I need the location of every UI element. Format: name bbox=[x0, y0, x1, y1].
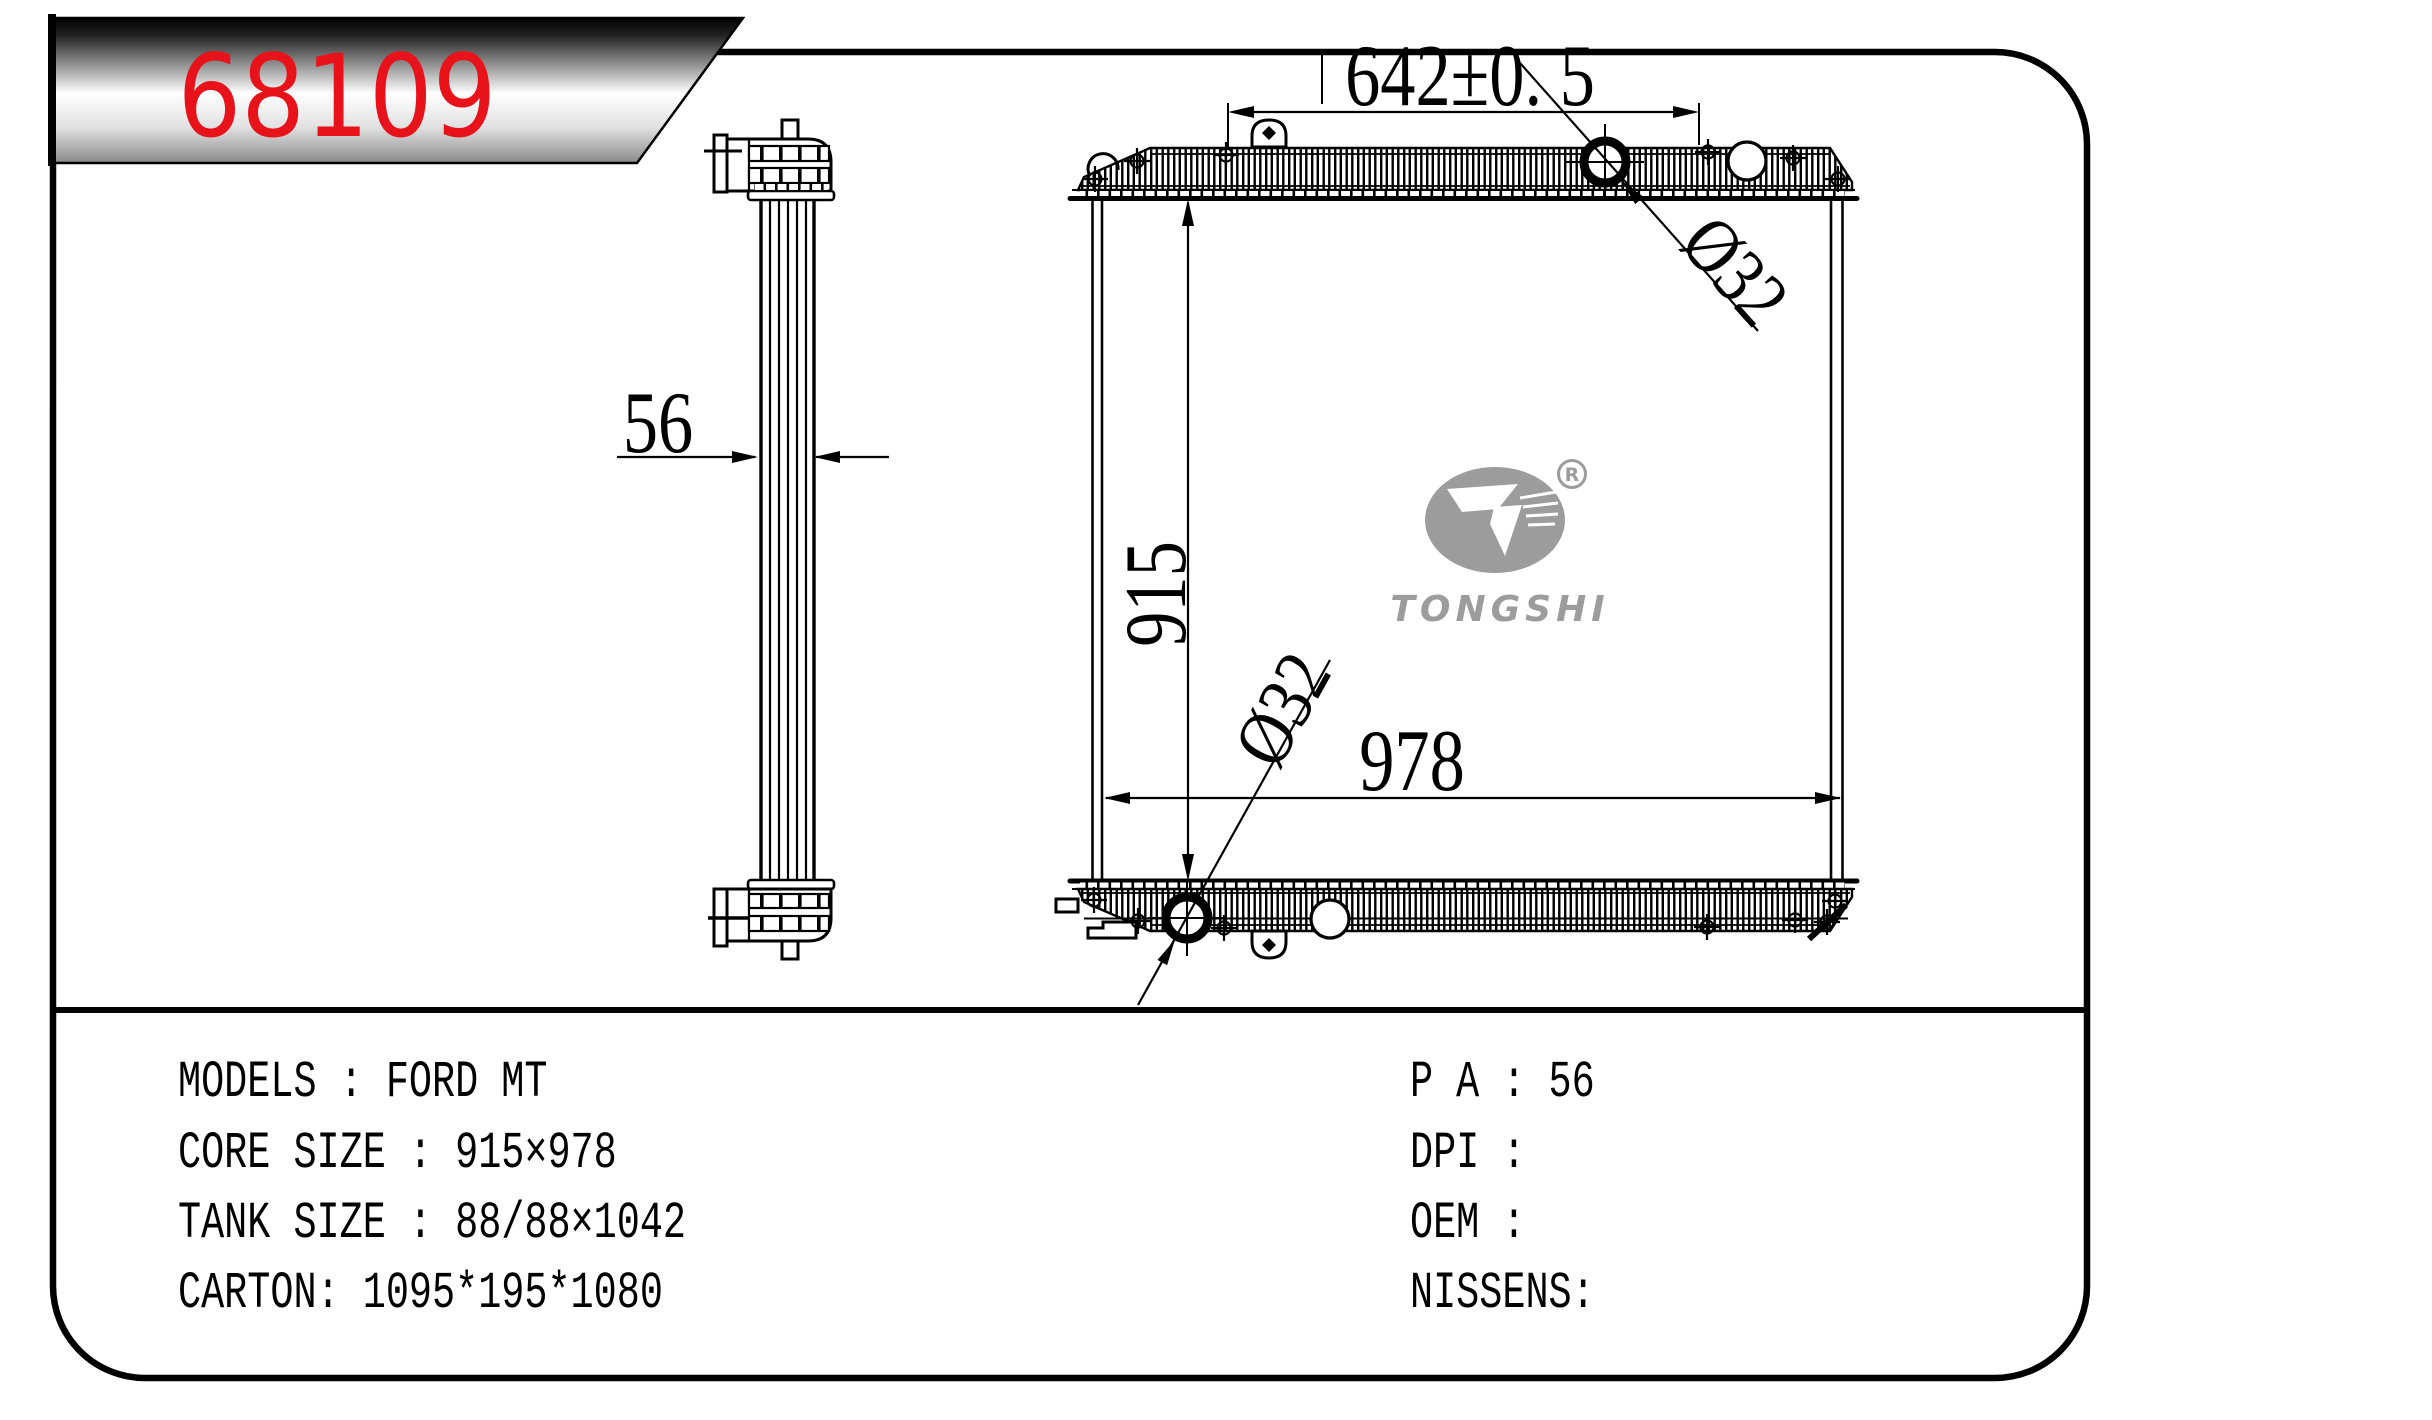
front-bottom-tank bbox=[1056, 880, 1857, 958]
dim-top-width: 642±0. 5 bbox=[1228, 28, 1699, 149]
top-port-circle bbox=[1728, 142, 1766, 180]
registered-mark-letter: R bbox=[1565, 464, 1580, 486]
dim-bottom-port: Ø32 bbox=[1138, 639, 1348, 1005]
spec-oem: OEM : bbox=[1410, 1194, 1525, 1253]
bottom-port-circle bbox=[1311, 900, 1349, 938]
bottom-left-bracket bbox=[1088, 922, 1136, 938]
spec-core-size: CORE SIZE : 915×978 bbox=[178, 1124, 617, 1183]
spec-carton: CARTON: 1095*195*1080 bbox=[178, 1264, 663, 1323]
dim-thickness: 56 bbox=[617, 375, 889, 472]
radiator-side-view bbox=[704, 120, 834, 959]
part-number-banner: 68109 bbox=[52, 14, 743, 166]
side-top-nub bbox=[782, 120, 798, 139]
side-bottom-nub bbox=[782, 941, 798, 959]
dim-core-height-text: 915 bbox=[1108, 541, 1205, 647]
spec-pa: P A : 56 bbox=[1410, 1053, 1595, 1112]
spec-tank-size: TANK SIZE : 88/88×1042 bbox=[178, 1194, 686, 1253]
tongshi-logo: R TONGSHI bbox=[1390, 461, 1609, 631]
dim-core-width: 978 bbox=[1104, 713, 1841, 810]
side-core bbox=[761, 200, 814, 880]
dim-bottom-port-text: Ø32 bbox=[1217, 639, 1348, 781]
dim-core-width-text: 978 bbox=[1359, 713, 1465, 810]
dim-top-port-text: Ø32 bbox=[1665, 199, 1805, 342]
bottom-left-nub bbox=[1056, 899, 1078, 912]
side-top-flange bbox=[714, 135, 727, 192]
part-number-text: 68109 bbox=[177, 31, 496, 164]
dim-thickness-text: 56 bbox=[623, 375, 693, 472]
spec-nissens: NISSENS: bbox=[1410, 1264, 1595, 1323]
dim-top-width-text: 642±0. 5 bbox=[1345, 28, 1595, 125]
spec-models: MODELS : FORD MT bbox=[178, 1053, 547, 1112]
brand-name-text: TONGSHI bbox=[1390, 589, 1609, 630]
spec-sheet-page: 68109 bbox=[0, 0, 2432, 1420]
front-top-tank bbox=[1070, 120, 1857, 200]
spec-dpi: DPI : bbox=[1410, 1124, 1525, 1183]
dim-core-height: 915 bbox=[1108, 199, 1205, 881]
